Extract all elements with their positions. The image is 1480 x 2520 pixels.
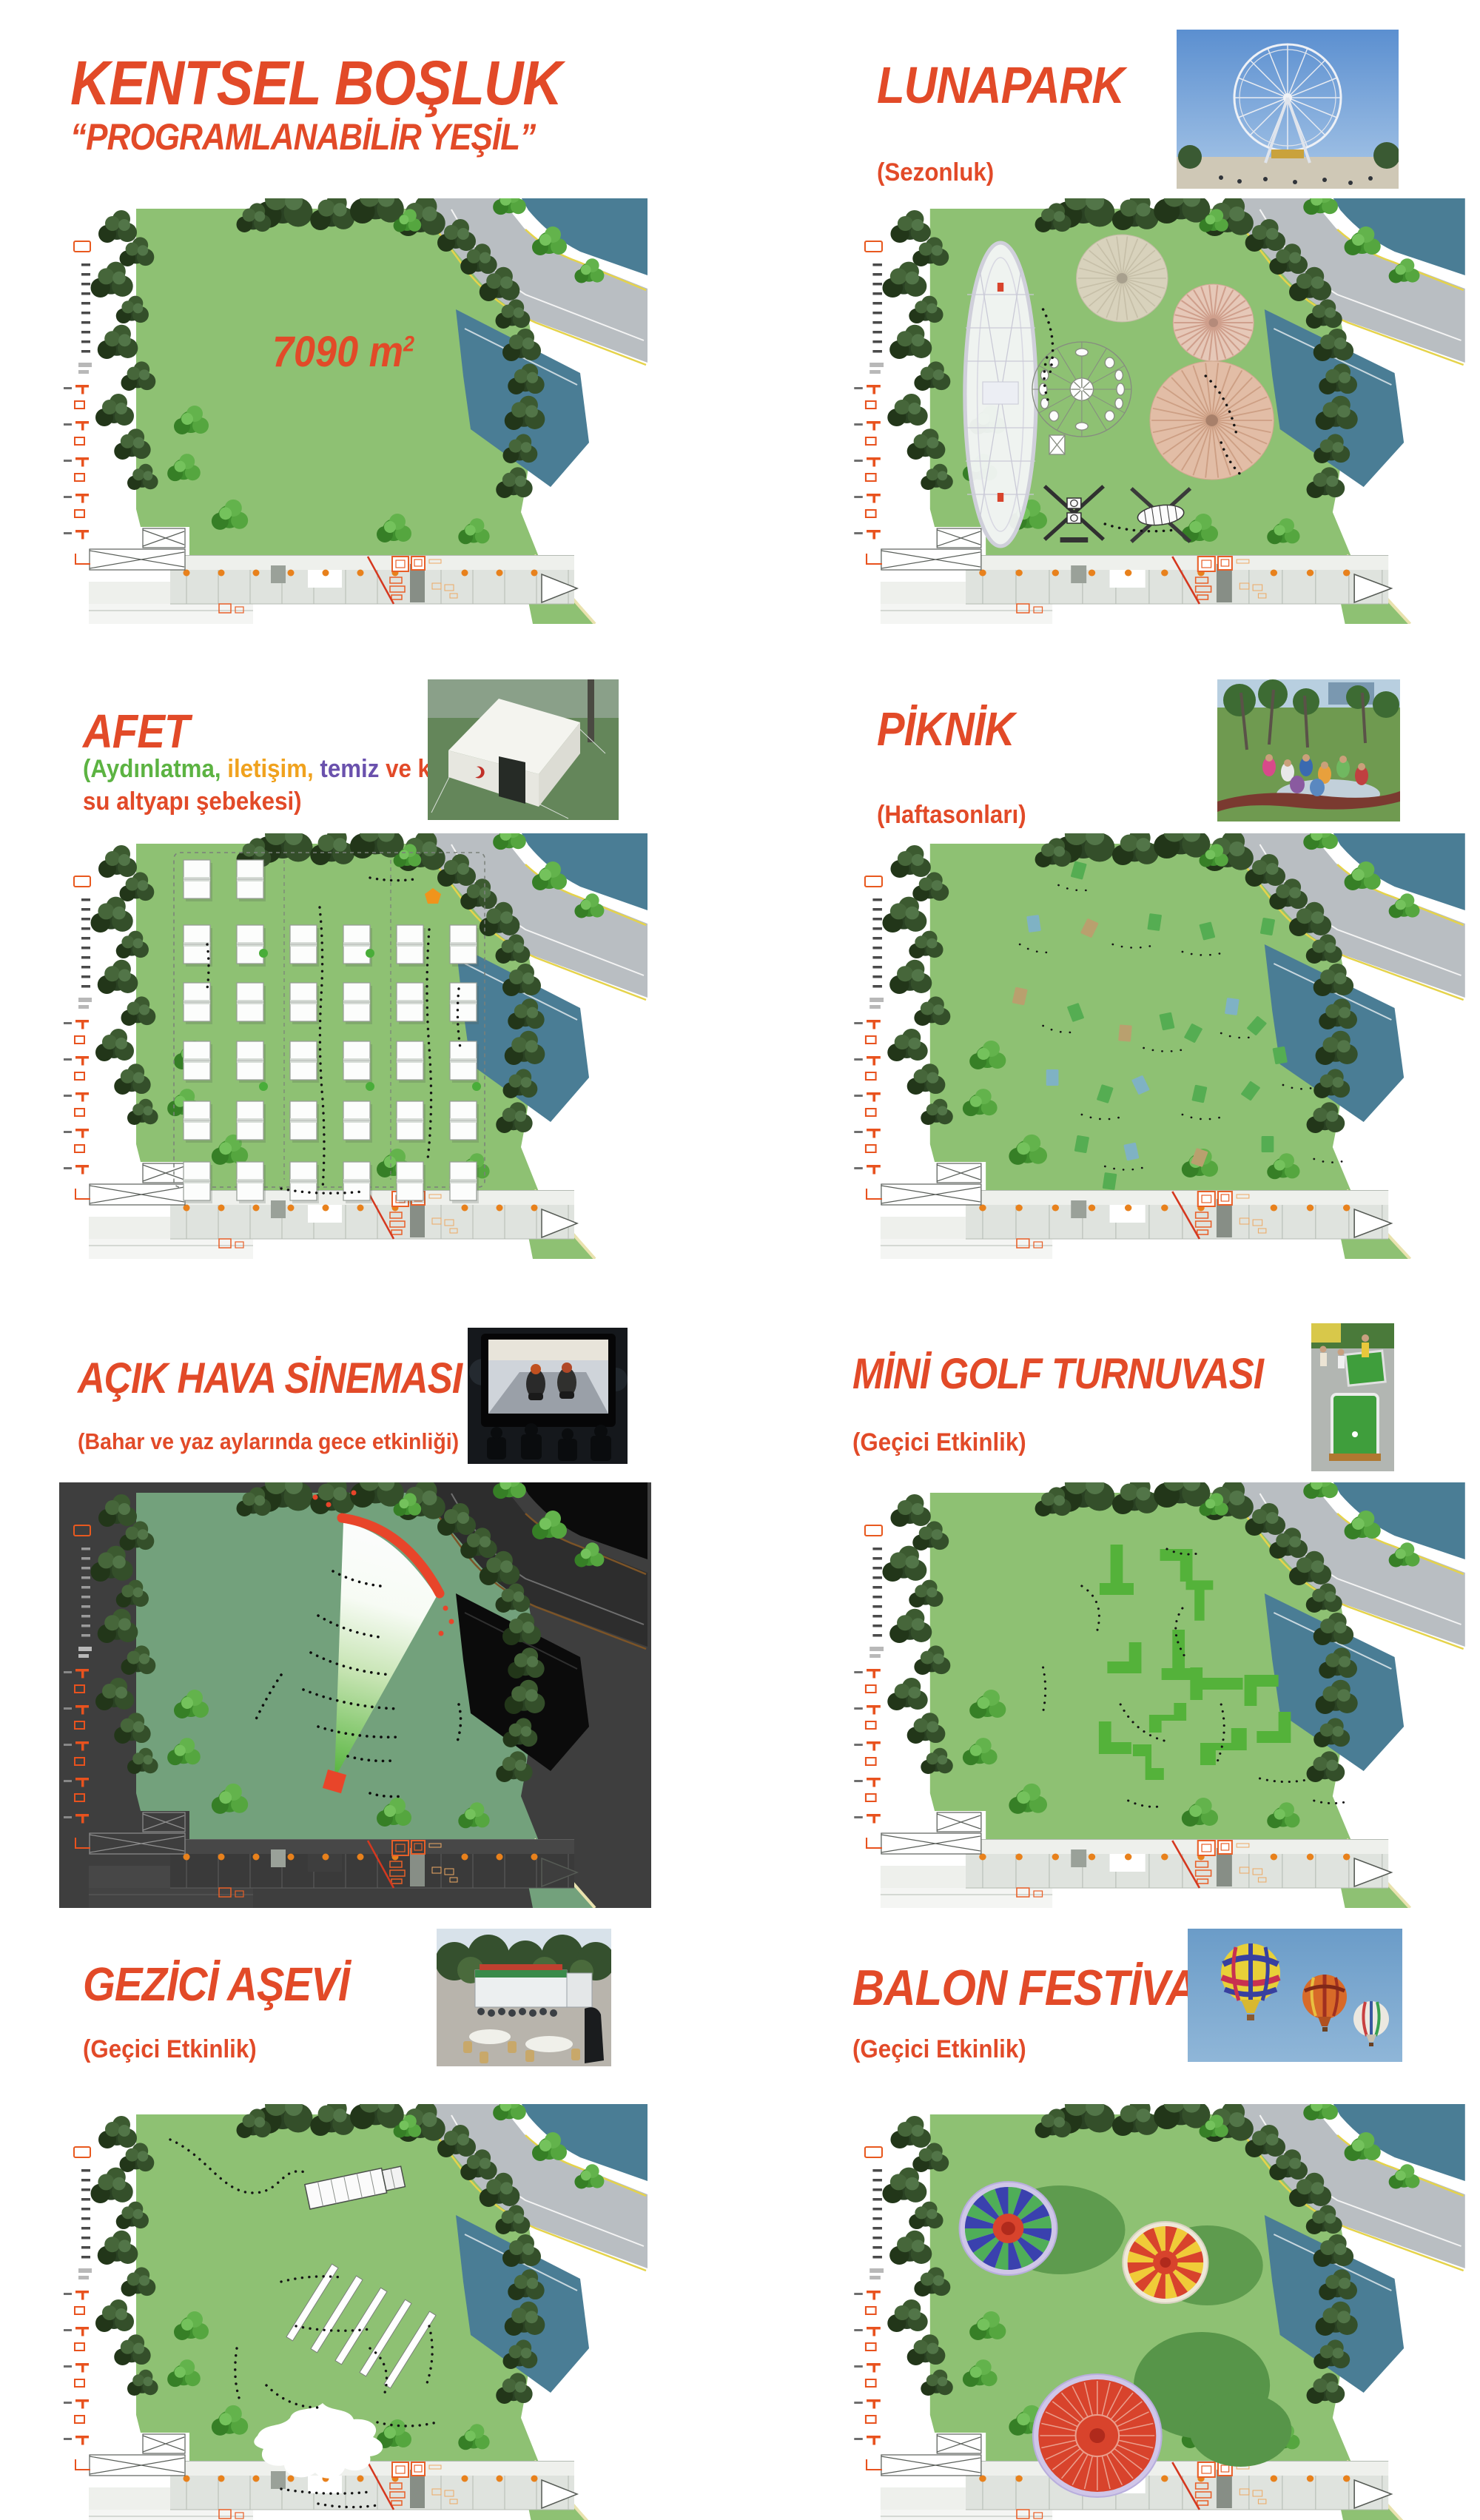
asevi-subtitle: (Geçici Etkinlik) bbox=[83, 2034, 257, 2066]
piknik-title: PİKNİK bbox=[877, 705, 1015, 753]
balloon-large-red bbox=[1033, 2374, 1162, 2497]
piknik-plan bbox=[850, 833, 1469, 1259]
circus-tent bbox=[1077, 235, 1168, 322]
subtitle-segment: iletişim, bbox=[221, 755, 314, 783]
piknik-subtitle: (Haftasonları) bbox=[877, 799, 1026, 832]
balon-subtitle: (Geçici Etkinlik) bbox=[852, 2034, 1026, 2066]
lunapark-subtitle: (Sezonluk) bbox=[877, 157, 994, 189]
sinema-plan bbox=[59, 1482, 651, 1908]
area-exponent: 2 bbox=[403, 332, 414, 357]
minigolf-site-plan bbox=[850, 1482, 1469, 1908]
balon-title: BALON FESTİVALİ bbox=[852, 1963, 1236, 2013]
board-title: KENTSEL BOŞLUK bbox=[70, 52, 562, 114]
minigolf-subtitle: (Geçici Etkinlik) bbox=[852, 1427, 1026, 1459]
afet-plan bbox=[59, 833, 651, 1259]
balloon-top-right bbox=[1123, 2222, 1208, 2303]
relief-tent-photo bbox=[428, 679, 619, 820]
balon-site-plan bbox=[850, 2104, 1469, 2520]
afet-subtitle: (Aydınlatma, iletişim, temiz ve kirli su… bbox=[83, 753, 464, 818]
site-plan bbox=[59, 198, 651, 624]
presentation-board: KENTSEL BOŞLUK “PROGRAMLANABİLİR YEŞİL” … bbox=[0, 0, 1480, 2520]
picnic-photo bbox=[1217, 679, 1400, 821]
area-label: 7090 m2 bbox=[272, 327, 414, 377]
balloon-top-left bbox=[960, 2182, 1057, 2275]
afet-title: AFET bbox=[83, 708, 189, 755]
subtitle-segment: (Aydınlatma, bbox=[83, 755, 221, 783]
asevi-site-plan bbox=[59, 2104, 651, 2520]
circus-tent bbox=[1150, 361, 1274, 480]
kentsel-plan bbox=[59, 198, 651, 624]
lunapark-title: LUNAPARK bbox=[877, 59, 1124, 111]
asevi-title: GEZİCİ AŞEVİ bbox=[83, 1960, 349, 2008]
hot-air-balloons-photo bbox=[1188, 1929, 1402, 2062]
board-subtitle: “PROGRAMLANABİLİR YEŞİL” bbox=[70, 118, 535, 155]
asevi-plan bbox=[59, 2104, 651, 2520]
lunapark-site-plan bbox=[850, 198, 1469, 624]
subtitle-segment: temiz bbox=[314, 755, 380, 783]
piknik-site-plan bbox=[850, 833, 1469, 1259]
minigolf-title: MİNİ GOLF TURNUVASI bbox=[852, 1353, 1263, 1396]
lunapark-plan bbox=[850, 198, 1469, 624]
sinema-subtitle: (Bahar ve yaz aylarında gece etkinliği) bbox=[78, 1427, 459, 1456]
mini-golf-photo bbox=[1311, 1323, 1394, 1471]
mobile-kitchen-photo bbox=[437, 1929, 611, 2066]
afet-site-plan bbox=[59, 833, 651, 1259]
minigolf-plan bbox=[850, 1482, 1469, 1908]
open-air-cinema-photo bbox=[468, 1328, 628, 1464]
area-value: 7090 m bbox=[272, 328, 403, 376]
sinema-site-plan bbox=[59, 1482, 651, 1908]
ferris-wheel-photo bbox=[1177, 30, 1399, 189]
balon-plan bbox=[850, 2104, 1469, 2520]
circus-tent bbox=[1173, 284, 1254, 361]
sinema-title: AÇIK HAVA SİNEMASI bbox=[78, 1357, 462, 1400]
